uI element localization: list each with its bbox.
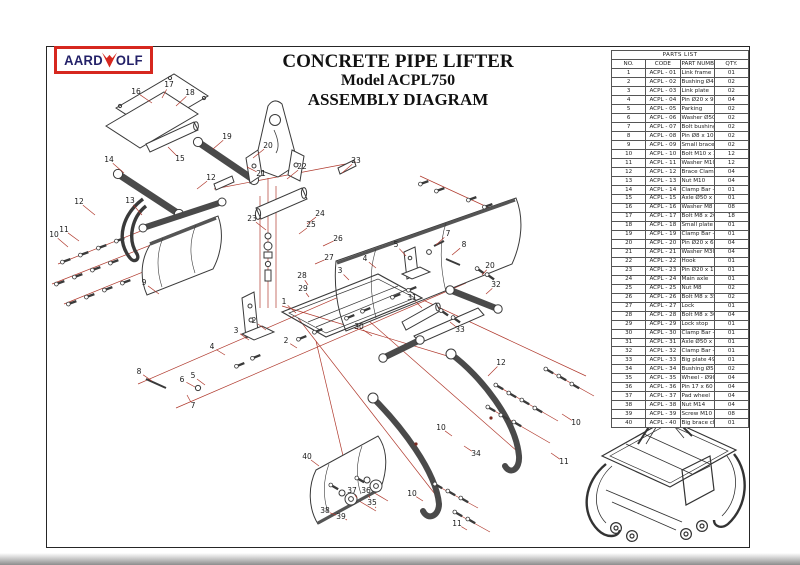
table-row: 40ACPL - 40Big brace channel01 — [612, 419, 749, 428]
bolt-glyph — [72, 272, 83, 279]
table-cell: Bolt M8 x 20 — [680, 212, 714, 221]
table-cell: 12 — [714, 149, 748, 158]
table-cell: 04 — [714, 239, 748, 248]
table-cell: Pin 17 x 60 - M14 — [680, 383, 714, 392]
table-cell: 01 — [714, 329, 748, 338]
table-cell: 22 — [612, 257, 646, 266]
col-qty: QTY. — [714, 59, 748, 68]
table-cell: 35 — [612, 374, 646, 383]
parts-list-header: NO. CODE PART NUMBER QTY. — [612, 59, 749, 68]
table-row: 28ACPL - 28Bolt M8 x 3004 — [612, 311, 749, 320]
part-label: 23 — [247, 214, 257, 223]
brand-text-left: AARD — [64, 53, 103, 67]
bolt-glyph — [90, 265, 101, 272]
table-cell: 02 — [714, 113, 748, 122]
part-label: 20 — [263, 141, 273, 150]
table-row: 13ACPL - 13Nut M1004 — [612, 176, 749, 185]
table-row: 30ACPL - 30Clamp Bar - 0301 — [612, 329, 749, 338]
table-row: 16ACPL - 16Washer M808 — [612, 203, 749, 212]
table-cell: 18 — [714, 212, 748, 221]
table-cell: ACPL - 32 — [646, 347, 680, 356]
table-cell: Bushing Ø40 x 16 — [680, 77, 714, 86]
leader-line — [216, 350, 225, 355]
part-label: 12 — [206, 173, 216, 182]
parts-list: PARTS LIST NO. CODE PART NUMBER QTY. 1AC… — [611, 50, 749, 428]
bolt-glyph — [96, 243, 107, 250]
parts-list-title: PARTS LIST — [612, 51, 749, 60]
table-cell: 04 — [714, 374, 748, 383]
table-cell: Big plate 496 — [680, 356, 714, 365]
table-cell: 19 — [612, 230, 646, 239]
part-label: 20 — [485, 261, 495, 270]
table-cell: 40 — [612, 419, 646, 428]
table-row: 15ACPL - 15Axle Ø50 x 46401 — [612, 194, 749, 203]
table-cell: 02 — [714, 365, 748, 374]
wheel — [681, 529, 692, 540]
table-row: 10ACPL - 10Bolt M10 x 3512 — [612, 149, 749, 158]
table-cell: 27 — [612, 302, 646, 311]
pin — [214, 176, 234, 190]
bolt-glyph — [543, 366, 554, 374]
main-axle — [256, 188, 307, 219]
part-label: 6 — [180, 375, 185, 384]
part-label: 17 — [164, 80, 174, 89]
leader-line — [197, 181, 207, 189]
part-label: 10 — [407, 489, 417, 498]
table-cell: ACPL - 06 — [646, 113, 680, 122]
table-row: 18ACPL - 18Small plate 46401 — [612, 221, 749, 230]
leader-line — [68, 233, 79, 241]
wolf-head-icon — [102, 51, 117, 69]
leader-line — [375, 507, 376, 508]
table-cell: 25 — [612, 284, 646, 293]
table-cell: 04 — [714, 176, 748, 185]
table-cell: 04 — [714, 383, 748, 392]
table-cell: 2 — [612, 77, 646, 86]
table-cell: ACPL - 39 — [646, 410, 680, 419]
table-cell: 04 — [714, 392, 748, 401]
leader-line — [323, 241, 333, 246]
table-cell: 8 — [612, 131, 646, 140]
part-label: 39 — [336, 512, 346, 521]
bolt-glyph — [458, 495, 469, 503]
table-cell: ACPL - 19 — [646, 230, 680, 239]
table-cell: 01 — [714, 356, 748, 365]
part-label: 3 — [234, 326, 239, 335]
table-cell: 31 — [612, 338, 646, 347]
part-label: 24 — [315, 209, 325, 218]
table-cell: 36 — [612, 383, 646, 392]
table-row: 39ACPL - 39Screw M10 x 1408 — [612, 410, 749, 419]
part-shapes — [106, 74, 521, 524]
part-label: 10 — [436, 423, 446, 432]
table-cell: 13 — [612, 176, 646, 185]
part-label: 37 — [347, 486, 357, 495]
table-cell: ACPL - 21 — [646, 248, 680, 257]
table-cell: ACPL - 35 — [646, 374, 680, 383]
table-cell: ACPL - 27 — [646, 302, 680, 311]
table-row: 25ACPL - 25Nut M802 — [612, 284, 749, 293]
table-cell: 6 — [612, 113, 646, 122]
table-cell: ACPL - 08 — [646, 131, 680, 140]
table-row: 14ACPL - 14Clamp Bar - 0101 — [612, 185, 749, 194]
wheel — [697, 521, 708, 532]
part-label: 34 — [471, 449, 481, 458]
clamp-bar — [118, 174, 179, 214]
table-cell: 01 — [714, 302, 748, 311]
table-cell: 01 — [714, 221, 748, 230]
table-cell: Pin Ø8 x 100 — [680, 131, 714, 140]
bolt-glyph — [296, 334, 307, 341]
table-row: 6ACPL - 06Washer Ø50 x 602 — [612, 113, 749, 122]
table-cell: 01 — [714, 320, 748, 329]
table-cell: Big brace channel — [680, 419, 714, 428]
table-cell: Pin Ø20 x 69 — [680, 239, 714, 248]
table-cell: 04 — [714, 248, 748, 257]
bolt-glyph — [66, 299, 77, 306]
bolt-glyph — [60, 257, 71, 264]
part-label: 38 — [320, 506, 330, 515]
table-row: 37ACPL - 37Pad wheel04 — [612, 392, 749, 401]
part-label: 31 — [407, 293, 417, 302]
part-label: 40 — [302, 452, 312, 461]
table-cell: 20 — [612, 239, 646, 248]
part-labels: 1617181920211415122223232425262712131110… — [49, 80, 581, 530]
part-label: 8 — [137, 367, 142, 376]
part-label: 36 — [361, 486, 371, 495]
part-label: 32 — [491, 280, 501, 289]
leader-line — [445, 431, 452, 436]
table-cell: 02 — [714, 131, 748, 140]
leader-line — [315, 260, 324, 264]
table-cell: 16 — [612, 203, 646, 212]
leader-line — [186, 382, 195, 387]
table-cell: 01 — [714, 266, 748, 275]
table-cell: Wheel - Ø90 x 50 — [680, 374, 714, 383]
part-label: 27 — [324, 253, 334, 262]
part-label: 30 — [354, 322, 364, 331]
table-cell: ACPL - 02 — [646, 77, 680, 86]
table-cell: 08 — [714, 203, 748, 212]
table-cell: 3 — [612, 86, 646, 95]
table-cell: ACPL - 23 — [646, 266, 680, 275]
bolt-glyph — [418, 179, 429, 186]
table-cell: 21 — [612, 248, 646, 257]
part-label: 15 — [175, 154, 185, 163]
table-cell: ACPL - 36 — [646, 383, 680, 392]
leader-line — [83, 205, 95, 215]
table-cell: ACPL - 16 — [646, 203, 680, 212]
part-label: 7 — [446, 229, 451, 238]
table-cell: 01 — [714, 257, 748, 266]
table-cell: ACPL - 28 — [646, 311, 680, 320]
table-row: 26ACPL - 26Bolt M8 x 3502 — [612, 293, 749, 302]
drawing-model: Model ACPL750 — [248, 72, 548, 90]
part-label: 18 — [185, 88, 195, 97]
wheel — [611, 523, 622, 534]
table-row: 38ACPL - 38Nut M1404 — [612, 401, 749, 410]
leader-line — [256, 222, 266, 230]
bolt-glyph — [54, 279, 65, 286]
table-row: 9ACPL - 09Small brace channel02 — [612, 140, 749, 149]
table-cell: ACPL - 11 — [646, 158, 680, 167]
part-label: 4 — [363, 254, 368, 263]
table-cell: Washer M10 — [680, 158, 714, 167]
table-cell: 10 — [612, 149, 646, 158]
table-cell: 7 — [612, 122, 646, 131]
bolt-glyph — [452, 509, 463, 517]
title-block: CONCRETE PIPE LIFTER Model ACPL750 ASSEM… — [248, 51, 548, 109]
table-cell: 34 — [612, 365, 646, 374]
part-label: 1 — [282, 297, 287, 306]
table-cell: ACPL - 04 — [646, 95, 680, 104]
leader-line — [311, 460, 319, 466]
part-label: 5 — [394, 240, 399, 249]
table-row: 11ACPL - 11Washer M1012 — [612, 158, 749, 167]
table-cell: 15 — [612, 194, 646, 203]
leader-line — [290, 344, 297, 348]
table-cell: 5 — [612, 104, 646, 113]
table-cell: 04 — [714, 401, 748, 410]
wheel — [627, 531, 638, 542]
table-cell: Nut M10 — [680, 176, 714, 185]
table-cell: Clamp Bar - 04 — [680, 347, 714, 356]
table-row: 19ACPL - 19Clamp Bar - 0201 — [612, 230, 749, 239]
table-cell: Small plate 464 — [680, 221, 714, 230]
table-row: 34ACPL - 34Bushing Ø50 x 16.502 — [612, 365, 749, 374]
table-cell: ACPL - 31 — [646, 338, 680, 347]
part-label: 12 — [74, 197, 84, 206]
table-cell: Washer Ø50 x 6 — [680, 113, 714, 122]
table-cell: 02 — [714, 77, 748, 86]
table-cell: Link frame — [680, 68, 714, 77]
table-cell: Hook — [680, 257, 714, 266]
table-cell: Axle Ø50 x 464 — [680, 194, 714, 203]
table-cell: 18 — [612, 221, 646, 230]
table-cell: ACPL - 34 — [646, 365, 680, 374]
table-row: 7ACPL - 07Bolt bushing M1602 — [612, 122, 749, 131]
table-cell: Bushing Ø50 x 16.5 — [680, 365, 714, 374]
parts-table-body: 1ACPL - 01Link frame012ACPL - 02Bushing … — [612, 68, 749, 427]
leader-line — [58, 238, 68, 247]
table-row: 22ACPL - 22Hook01 — [612, 257, 749, 266]
bolt-glyph — [465, 516, 476, 524]
table-cell: 26 — [612, 293, 646, 302]
table-cell: Lock — [680, 302, 714, 311]
table-cell: Main axle — [680, 275, 714, 284]
col-code: CODE — [646, 59, 680, 68]
clamp-bar — [383, 340, 420, 358]
table-cell: 12 — [714, 158, 748, 167]
table-cell: 11 — [612, 158, 646, 167]
bolt-glyph — [445, 488, 456, 496]
part-label: 10 — [571, 418, 581, 427]
table-cell: ACPL - 10 — [646, 149, 680, 158]
table-cell: 02 — [714, 140, 748, 149]
table-cell: 23 — [612, 266, 646, 275]
table-cell: 04 — [714, 311, 748, 320]
table-cell: Clamp Bar - 03 — [680, 329, 714, 338]
bolt-glyph — [434, 186, 445, 193]
table-cell: Bolt M10 x 35 — [680, 149, 714, 158]
table-cell: Link plate — [680, 86, 714, 95]
part-label: 2 — [284, 336, 289, 345]
table-cell: Washer M30 — [680, 248, 714, 257]
table-cell: ACPL - 15 — [646, 194, 680, 203]
table-cell: 38 — [612, 401, 646, 410]
table-cell: 01 — [714, 194, 748, 203]
table-cell: Screw M10 x 14 — [680, 410, 714, 419]
table-cell: 14 — [612, 185, 646, 194]
table-cell: ACPL - 26 — [646, 293, 680, 302]
part-label: 11 — [59, 225, 69, 234]
table-row: 4ACPL - 04Pin Ø20 x 9104 — [612, 95, 749, 104]
table-cell: Bolt M8 x 35 — [680, 293, 714, 302]
leader-line — [416, 497, 423, 501]
table-cell: ACPL - 18 — [646, 221, 680, 230]
table-cell: 33 — [612, 356, 646, 365]
table-row: 32ACPL - 32Clamp Bar - 0401 — [612, 347, 749, 356]
table-cell: 4 — [612, 95, 646, 104]
part-label: 29 — [298, 284, 308, 293]
brand-text-right: OLF — [116, 53, 143, 67]
table-cell: 02 — [714, 104, 748, 113]
table-cell: 01 — [714, 275, 748, 284]
table-row: 12ACPL - 12Brace Clamp04 — [612, 167, 749, 176]
table-cell: ACPL - 40 — [646, 419, 680, 428]
part-label: 11 — [452, 519, 462, 528]
table-cell: 04 — [714, 95, 748, 104]
table-cell: 04 — [714, 167, 748, 176]
table-row: 36ACPL - 36Pin 17 x 60 - M1404 — [612, 383, 749, 392]
table-cell: ACPL - 09 — [646, 140, 680, 149]
table-cell: 39 — [612, 410, 646, 419]
table-cell: 01 — [714, 230, 748, 239]
part-label: 2 — [252, 316, 257, 325]
table-row: 29ACPL - 29Lock stop01 — [612, 320, 749, 329]
bolt-glyph — [78, 250, 89, 257]
part-label: 21 — [256, 169, 266, 178]
leader-line — [213, 140, 223, 149]
part-label: 9 — [142, 278, 147, 287]
bolt-glyph — [493, 382, 504, 390]
table-cell: Bolt bushing M16 — [680, 122, 714, 131]
drawing-title: CONCRETE PIPE LIFTER — [248, 51, 548, 72]
table-cell: ACPL - 14 — [646, 185, 680, 194]
table-cell: ACPL - 22 — [646, 257, 680, 266]
leader-line — [306, 293, 309, 297]
part-label: 4 — [210, 342, 215, 351]
brand-logo: AARD OLF — [54, 46, 153, 74]
table-cell: ACPL - 37 — [646, 392, 680, 401]
brace-channel — [142, 216, 221, 295]
table-row: 21ACPL - 21Washer M3004 — [612, 248, 749, 257]
part-label: 13 — [125, 196, 135, 205]
table-row: 3ACPL - 03Link plate02 — [612, 86, 749, 95]
table-cell: Clamp Bar - 01 — [680, 185, 714, 194]
table-row: 31ACPL - 31Axle Ø50 x 49601 — [612, 338, 749, 347]
part-label: 11 — [559, 457, 569, 466]
part-label: 12 — [496, 358, 506, 367]
col-no: NO. — [612, 59, 646, 68]
table-cell: ACPL - 33 — [646, 356, 680, 365]
table-cell: 01 — [714, 185, 748, 194]
bolt-glyph — [485, 404, 496, 412]
col-part: PART NUMBER — [680, 59, 714, 68]
bolt-glyph — [506, 390, 517, 398]
table-cell: ACPL - 17 — [646, 212, 680, 221]
table-cell: Small brace channel — [680, 140, 714, 149]
table-row: 27ACPL - 27Lock01 — [612, 302, 749, 311]
table-cell: Pad wheel — [680, 392, 714, 401]
table-cell: 32 — [612, 347, 646, 356]
part-label: 19 — [222, 132, 232, 141]
table-cell: 02 — [714, 86, 748, 95]
table-row: 33ACPL - 33Big plate 49601 — [612, 356, 749, 365]
part-label: 14 — [104, 155, 114, 164]
table-cell: Nut M14 — [680, 401, 714, 410]
table-row: 1ACPL - 01Link frame01 — [612, 68, 749, 77]
table-cell: 01 — [714, 338, 748, 347]
table-cell: 37 — [612, 392, 646, 401]
bolt-glyph — [569, 381, 580, 389]
part-label: 16 — [131, 87, 141, 96]
table-cell: ACPL - 01 — [646, 68, 680, 77]
table-cell: ACPL - 05 — [646, 104, 680, 113]
table-cell: ACPL - 38 — [646, 401, 680, 410]
part-label: 5 — [191, 371, 196, 380]
table-cell: ACPL - 29 — [646, 320, 680, 329]
leader-line — [488, 367, 497, 376]
table-cell: ACPL - 25 — [646, 284, 680, 293]
table-cell: ACPL - 13 — [646, 176, 680, 185]
clamp-arm — [451, 354, 519, 471]
part-label: 3 — [338, 266, 343, 275]
part-label: 25 — [306, 220, 316, 229]
part-label: 35 — [367, 498, 377, 507]
table-cell: 30 — [612, 329, 646, 338]
table-row: 35ACPL - 35Wheel - Ø90 x 5004 — [612, 374, 749, 383]
table-cell: Parking — [680, 104, 714, 113]
table-row: 8ACPL - 08Pin Ø8 x 10002 — [612, 131, 749, 140]
table-cell: 02 — [714, 284, 748, 293]
table-cell: 9 — [612, 140, 646, 149]
part-label: 26 — [333, 234, 343, 243]
clamp-bar — [450, 290, 498, 309]
part-label: 10 — [49, 230, 59, 239]
scan-shadow — [0, 553, 800, 565]
table-cell: 1 — [612, 68, 646, 77]
bolt-glyph — [250, 353, 261, 360]
table-cell: Axle Ø50 x 496 — [680, 338, 714, 347]
bolt-glyph — [556, 373, 567, 381]
table-cell: Clamp Bar - 02 — [680, 230, 714, 239]
wheel — [370, 480, 382, 492]
leader-line — [461, 527, 467, 530]
part-label: 22 — [297, 162, 307, 171]
table-cell: ACPL - 03 — [646, 86, 680, 95]
part-label: 7 — [191, 401, 196, 410]
table-cell: 01 — [714, 68, 748, 77]
table-cell: 02 — [714, 293, 748, 302]
table-row: 5ACPL - 05Parking02 — [612, 104, 749, 113]
part-label: 23 — [351, 156, 361, 165]
table-cell: Brace Clamp — [680, 167, 714, 176]
table-row: 17ACPL - 17Bolt M8 x 2018 — [612, 212, 749, 221]
part-label: 33 — [455, 325, 465, 334]
table-cell: Pin Ø20 x 103 — [680, 266, 714, 275]
table-cell: Washer M8 — [680, 203, 714, 212]
